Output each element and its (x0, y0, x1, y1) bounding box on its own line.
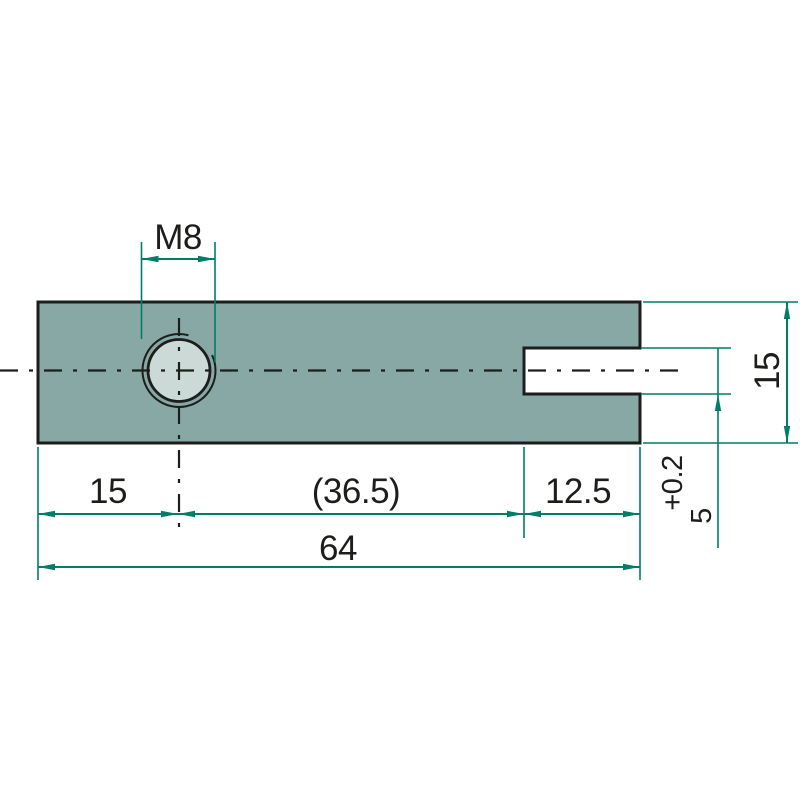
slot-height-label: 5 (686, 508, 718, 524)
part-body (38, 302, 640, 443)
arrowhead-left (524, 511, 541, 517)
hole-offset-label: 15 (89, 472, 127, 511)
arrowhead-left (38, 564, 55, 570)
thread-label: M8 (154, 218, 202, 257)
arrowhead-right (161, 511, 178, 517)
bar-height-label: 15 (748, 352, 787, 390)
arrowhead-right (623, 511, 640, 517)
slot-height-tolerance-label: +0.2 (657, 455, 689, 510)
drawing-canvas: M8 15 (36.5) 12.5 64 15 5 +0.2 (0, 0, 800, 800)
arrowhead-left (178, 511, 195, 517)
arrowhead-right (623, 564, 640, 570)
arrowhead-left (38, 511, 55, 517)
arrowhead-up (784, 302, 790, 319)
arrowhead-right (507, 511, 524, 517)
technical-drawing: M8 15 (36.5) 12.5 64 15 5 +0.2 (0, 0, 800, 800)
arrowhead-up (715, 394, 721, 411)
slot-depth-label: 12.5 (545, 472, 611, 511)
overall-length-label: 64 (319, 529, 357, 568)
arrowhead-down (784, 426, 790, 443)
hole-to-slot-label: (36.5) (312, 472, 400, 511)
